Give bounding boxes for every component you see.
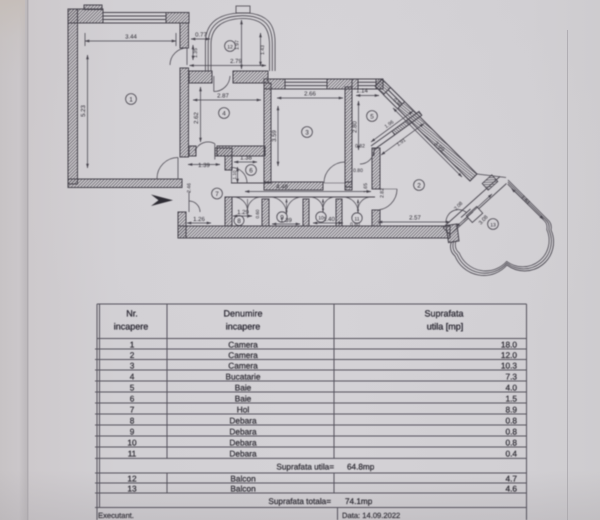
svg-text:Denumire: Denumire bbox=[223, 309, 262, 319]
svg-text:7: 7 bbox=[130, 404, 135, 414]
svg-text:18.0: 18.0 bbox=[501, 339, 518, 349]
svg-text:Debara: Debara bbox=[229, 448, 257, 458]
svg-text:74.1mp: 74.1mp bbox=[345, 497, 373, 506]
svg-text:1.26: 1.26 bbox=[193, 216, 205, 223]
svg-text:0.82: 0.82 bbox=[355, 144, 365, 150]
svg-text:Debara: Debara bbox=[229, 426, 257, 436]
svg-text:13: 13 bbox=[490, 222, 496, 228]
svg-text:11: 11 bbox=[128, 448, 137, 458]
svg-text:2.46: 2.46 bbox=[187, 183, 193, 193]
svg-text:8.9: 8.9 bbox=[505, 404, 517, 414]
svg-text:1.39: 1.39 bbox=[198, 162, 210, 169]
svg-text:13: 13 bbox=[127, 483, 137, 493]
svg-text:6: 6 bbox=[130, 394, 135, 404]
svg-text:8: 8 bbox=[130, 415, 135, 425]
svg-text:1.10: 1.10 bbox=[232, 170, 237, 179]
svg-text:Bucatarie: Bucatarie bbox=[225, 371, 260, 381]
svg-text:Executant.: Executant. bbox=[98, 511, 134, 520]
svg-text:0.77: 0.77 bbox=[195, 32, 207, 39]
svg-text:Balcon: Balcon bbox=[230, 473, 256, 483]
svg-text:4.6: 4.6 bbox=[505, 483, 517, 493]
svg-text:1.43: 1.43 bbox=[260, 45, 266, 55]
svg-text:11: 11 bbox=[354, 216, 359, 222]
svg-text:Suprafata utila=: Suprafata utila= bbox=[276, 463, 334, 472]
svg-text:2.82: 2.82 bbox=[380, 188, 386, 198]
svg-text:0.4: 0.4 bbox=[505, 448, 517, 458]
svg-text:0.8: 0.8 bbox=[505, 438, 517, 448]
svg-text:1.61: 1.61 bbox=[519, 194, 531, 206]
svg-text:4.7: 4.7 bbox=[505, 473, 517, 483]
svg-text:incapere: incapere bbox=[226, 322, 261, 332]
svg-text:6: 6 bbox=[249, 167, 253, 174]
svg-text:Debara: Debara bbox=[229, 415, 257, 425]
svg-text:Debara: Debara bbox=[229, 438, 257, 448]
svg-text:64.8mp: 64.8mp bbox=[347, 463, 375, 472]
svg-text:4: 4 bbox=[130, 371, 135, 381]
svg-text:1.5: 1.5 bbox=[505, 394, 517, 404]
svg-text:4: 4 bbox=[222, 110, 226, 117]
svg-text:Suprafata totala=: Suprafata totala= bbox=[268, 497, 331, 506]
svg-text:10: 10 bbox=[318, 215, 324, 221]
svg-text:12: 12 bbox=[127, 473, 137, 483]
svg-text:2.62: 2.62 bbox=[193, 112, 200, 124]
svg-text:Balcon: Balcon bbox=[230, 483, 256, 493]
svg-text:Suprafata: Suprafata bbox=[424, 309, 463, 319]
svg-text:7.3: 7.3 bbox=[505, 371, 517, 381]
svg-text:2.66: 2.66 bbox=[304, 91, 316, 98]
svg-text:9: 9 bbox=[130, 426, 135, 436]
svg-text:12.0: 12.0 bbox=[501, 350, 518, 360]
svg-text:12: 12 bbox=[227, 44, 233, 50]
svg-text:1.14: 1.14 bbox=[356, 88, 368, 95]
svg-text:2: 2 bbox=[417, 182, 421, 189]
svg-text:2: 2 bbox=[130, 350, 135, 360]
svg-text:0.80: 0.80 bbox=[353, 168, 363, 174]
svg-text:Camera: Camera bbox=[228, 339, 258, 349]
svg-text:Data: 14.09.2022: Data: 14.09.2022 bbox=[342, 511, 400, 520]
svg-text:1.91: 1.91 bbox=[396, 137, 408, 148]
svg-text:1.29: 1.29 bbox=[237, 209, 249, 216]
svg-text:3: 3 bbox=[305, 129, 309, 136]
svg-text:1.35: 1.35 bbox=[193, 48, 199, 58]
svg-text:2.87: 2.87 bbox=[217, 93, 229, 100]
svg-text:0.8: 0.8 bbox=[505, 415, 517, 425]
svg-text:9: 9 bbox=[280, 214, 284, 221]
svg-text:incapere: incapere bbox=[114, 322, 149, 332]
svg-text:10: 10 bbox=[127, 438, 137, 448]
svg-text:2.57: 2.57 bbox=[409, 215, 421, 222]
svg-text:5: 5 bbox=[370, 113, 374, 120]
svg-text:1.65: 1.65 bbox=[363, 183, 369, 193]
svg-text:1: 1 bbox=[129, 96, 133, 103]
svg-text:4.0: 4.0 bbox=[505, 383, 517, 393]
svg-text:1: 1 bbox=[130, 339, 135, 349]
svg-text:3: 3 bbox=[130, 361, 135, 371]
svg-text:8: 8 bbox=[237, 218, 241, 225]
svg-text:1.40: 1.40 bbox=[323, 216, 335, 223]
svg-text:0.8: 0.8 bbox=[505, 426, 517, 436]
svg-text:Nr.: Nr. bbox=[126, 309, 138, 319]
svg-text:5: 5 bbox=[130, 383, 135, 393]
svg-text:Baie: Baie bbox=[235, 383, 252, 393]
svg-text:2.79: 2.79 bbox=[230, 58, 242, 65]
svg-text:1.38: 1.38 bbox=[240, 155, 252, 162]
svg-text:Hol: Hol bbox=[237, 404, 250, 414]
svg-text:7: 7 bbox=[215, 191, 219, 198]
svg-text:0.60: 0.60 bbox=[255, 209, 260, 218]
svg-text:2.80: 2.80 bbox=[351, 121, 358, 133]
svg-text:Camera: Camera bbox=[228, 350, 258, 360]
svg-text:Camera: Camera bbox=[228, 361, 258, 371]
svg-text:Baie: Baie bbox=[235, 394, 252, 404]
svg-text:4.48: 4.48 bbox=[276, 184, 288, 191]
svg-text:10.3: 10.3 bbox=[501, 361, 518, 371]
svg-text:5.23: 5.23 bbox=[80, 105, 87, 117]
svg-text:3.59: 3.59 bbox=[271, 130, 278, 142]
svg-text:3.44: 3.44 bbox=[125, 34, 137, 41]
svg-text:utila [mp]: utila [mp] bbox=[427, 322, 464, 332]
